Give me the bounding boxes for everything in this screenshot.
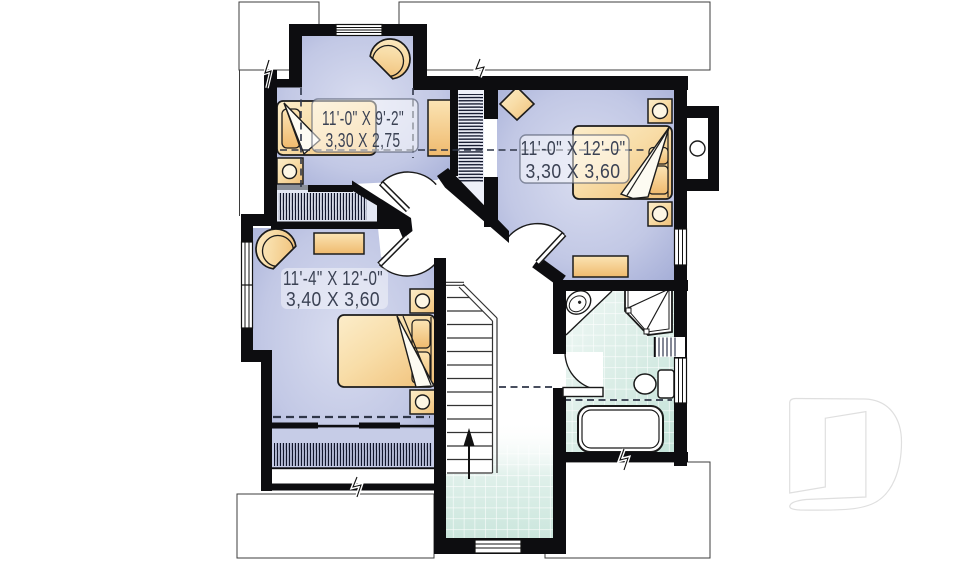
svg-text:11'-0" X 12'-0": 11'-0" X 12'-0" xyxy=(521,138,626,160)
svg-text:3,40 X 3,60: 3,40 X 3,60 xyxy=(286,289,380,311)
svg-text:3,30 X 3,60: 3,30 X 3,60 xyxy=(526,161,621,183)
svg-text:3,30 X 2,75: 3,30 X 2,75 xyxy=(326,130,401,152)
svg-text:11'-4" X 12'-0": 11'-4" X 12'-0" xyxy=(283,268,383,290)
svg-text:11'-0" X 9'-2": 11'-0" X 9'-2" xyxy=(322,108,404,130)
